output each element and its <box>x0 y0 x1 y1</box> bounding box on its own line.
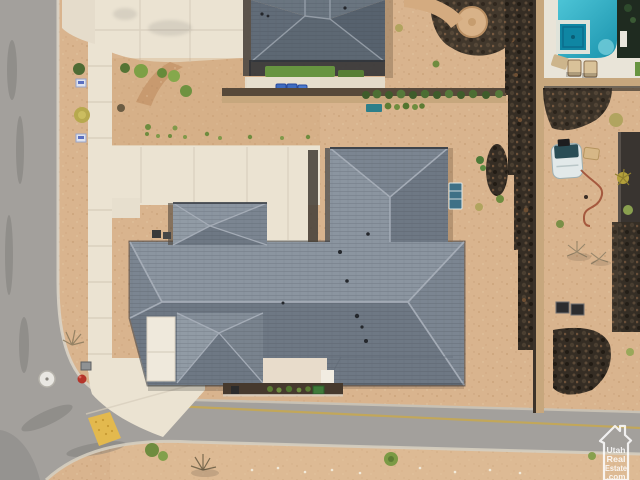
shrub <box>588 452 596 460</box>
paver-circle-center <box>468 18 476 26</box>
east-block-wall <box>536 0 544 413</box>
neighbor-roof-shingles <box>251 0 385 62</box>
front-planter <box>223 383 343 397</box>
dry-shrub <box>609 113 623 127</box>
ac-unit <box>556 302 569 313</box>
front-gutter-line <box>223 394 343 397</box>
block-wall-a <box>222 96 320 103</box>
planter-shrub <box>630 17 636 23</box>
pool-steps <box>598 39 614 55</box>
spa-drain <box>571 35 575 39</box>
lawn-strip <box>265 66 335 77</box>
planter-shadow-bed <box>223 383 343 395</box>
rock-patch <box>486 144 508 196</box>
planter-shrub <box>624 4 632 12</box>
pool-area <box>540 0 640 91</box>
shrub-center <box>388 456 394 462</box>
side-pad <box>112 198 140 218</box>
fire-hydrant <box>78 375 87 384</box>
wall-shadow-a <box>222 88 320 96</box>
shrub <box>556 220 564 228</box>
pergola-pillar <box>620 31 627 47</box>
dry-shrub <box>475 203 483 211</box>
grass-sliver <box>635 62 640 76</box>
chair-shadow <box>566 72 581 77</box>
hose-reel <box>584 195 588 199</box>
pool-wall <box>540 78 640 86</box>
white-patio-roof <box>147 317 175 381</box>
shrub <box>73 63 85 75</box>
eave-ground-shadow <box>148 385 223 391</box>
chair-shadow <box>582 73 597 78</box>
shrub <box>433 61 440 68</box>
tall-window <box>449 183 462 209</box>
upper-wing-roof <box>325 148 462 242</box>
scene-canvas: Utah Real Estate .com <box>0 0 640 480</box>
shrub <box>626 348 634 356</box>
watermark-line-2: Real <box>607 454 626 464</box>
teal-equipment <box>366 104 382 112</box>
courtyard-wall-shadow <box>308 150 318 242</box>
watermark-line-4: .com <box>607 472 626 480</box>
entry-porch-roof <box>263 358 327 384</box>
lawn-strip-2 <box>338 70 364 78</box>
manhole-center <box>45 377 48 380</box>
fire-hydrant-cap <box>79 376 82 379</box>
shrub <box>158 451 168 461</box>
ll-wing-shingles <box>177 313 263 383</box>
dark-gravel <box>612 222 640 332</box>
boat-cockpit <box>554 144 579 159</box>
ac-unit <box>571 304 584 315</box>
utility-marker-label <box>78 81 84 84</box>
planter-pot <box>231 386 239 394</box>
dry-shrub <box>395 24 403 32</box>
eave-ground-shadow-2 <box>343 383 464 389</box>
utility-box <box>81 362 91 370</box>
cactus <box>476 156 484 164</box>
left-wing-roof <box>168 203 267 245</box>
stone-block <box>583 147 599 160</box>
roof-vent <box>366 232 370 236</box>
upper-wing-west-shadow <box>325 148 330 242</box>
cactus <box>480 165 486 171</box>
lower-left-wing-roof <box>177 313 263 383</box>
shrub <box>496 195 504 203</box>
boat-motor <box>558 139 570 147</box>
shrub <box>145 443 159 457</box>
neighbor-east-shadow <box>385 0 393 78</box>
green-crate <box>313 386 324 394</box>
shrub <box>623 205 633 215</box>
entry-step <box>321 370 334 383</box>
utility-marker-label <box>78 136 84 139</box>
neighbor-house-top <box>243 0 393 88</box>
yellow-bush-highlight <box>78 111 86 119</box>
aerial-photo: Utah Real Estate .com <box>0 0 640 480</box>
